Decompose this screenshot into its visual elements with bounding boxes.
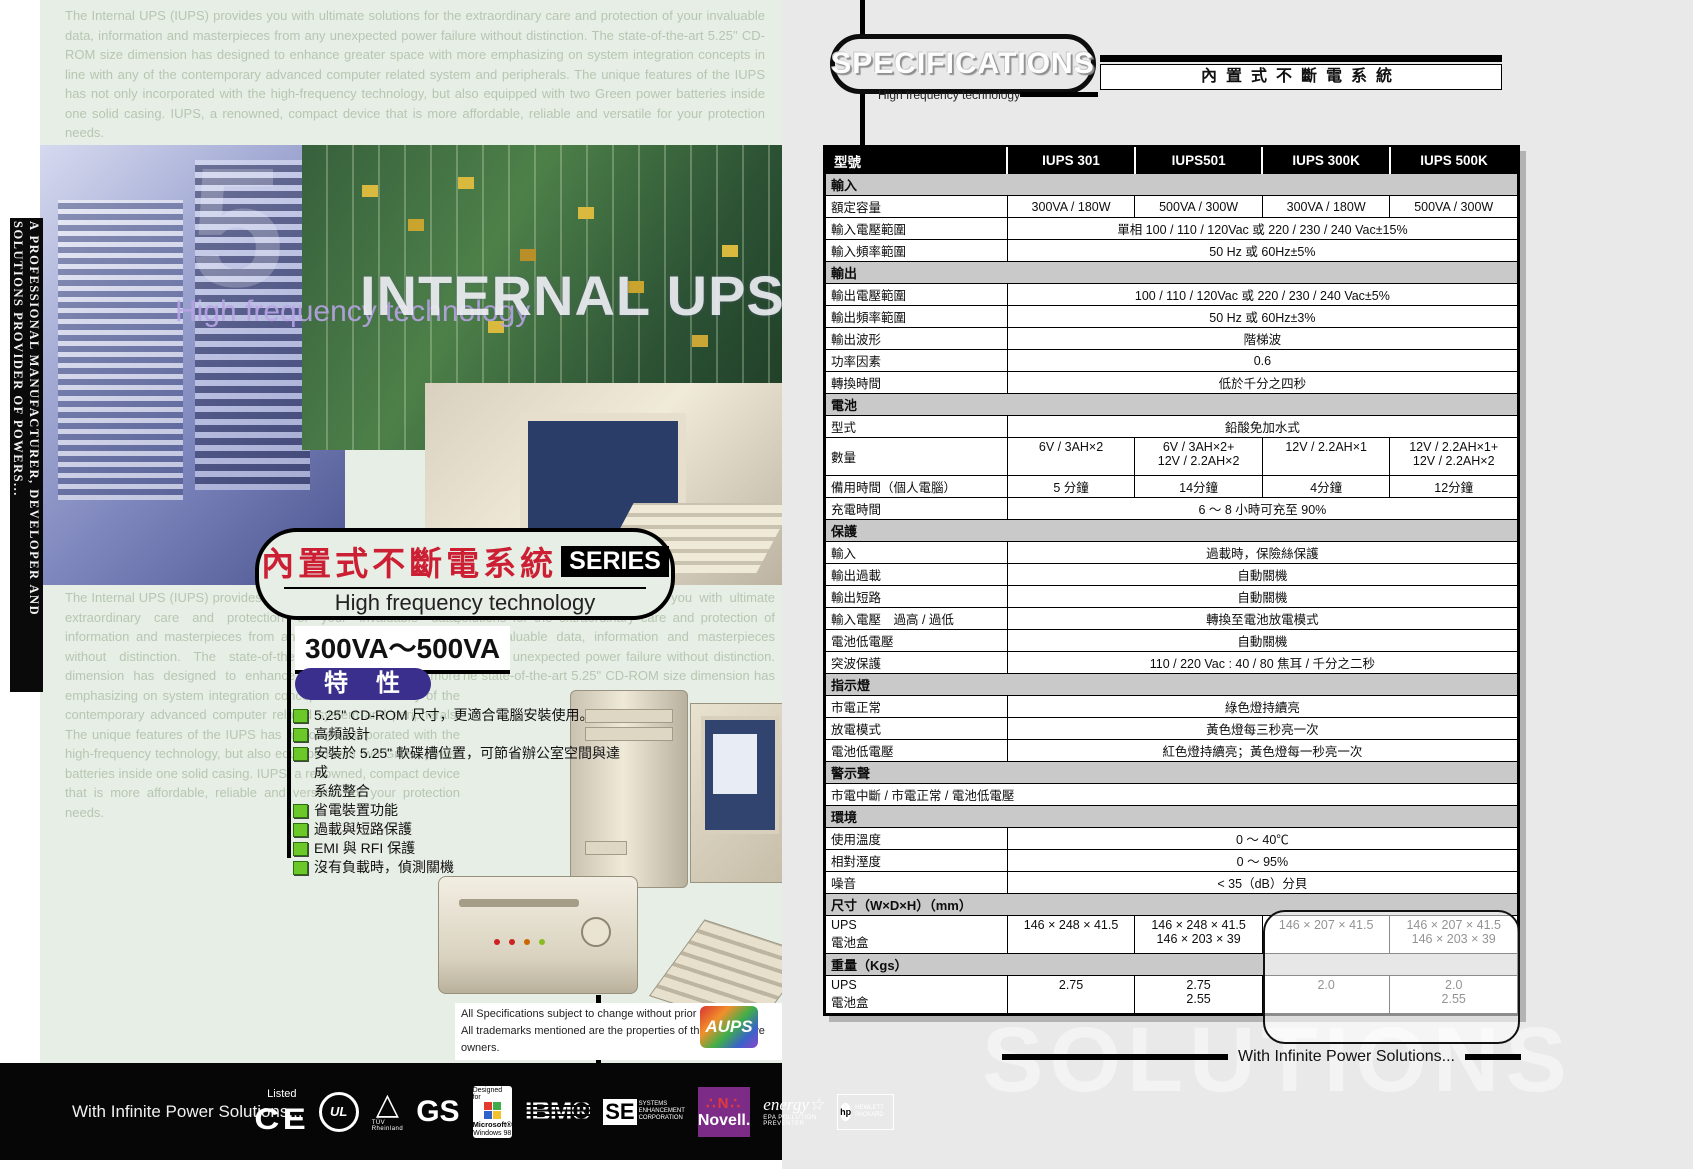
ce-mark-icon: CE bbox=[254, 1105, 309, 1135]
series-subtitle: High frequency technology bbox=[335, 590, 596, 616]
led-icon bbox=[539, 939, 545, 945]
brochure-spread: The Internal UPS (IUPS) provides you wit… bbox=[0, 0, 1693, 1169]
test-button bbox=[581, 917, 611, 947]
windows98-label: Windows 98 bbox=[473, 1130, 511, 1137]
spec-cell: 4分鐘 bbox=[1262, 476, 1390, 498]
spec-cell: UPS 電池盒 bbox=[826, 976, 1008, 1014]
se-mark-icon: SE bbox=[603, 1099, 636, 1125]
spec-row: 指示燈 bbox=[826, 674, 1518, 696]
spec-cell: 電池低電壓 bbox=[826, 740, 1008, 762]
spec-row: 輸入電壓範圍單相 100 / 110 / 120Vac 或 220 / 230 … bbox=[826, 218, 1518, 240]
spec-cell: 市電正常 bbox=[826, 696, 1008, 718]
spec-cell: 146 × 248 × 41.5 bbox=[1007, 916, 1135, 954]
bullet-square-icon bbox=[293, 842, 308, 856]
spec-cell: 50 Hz 或 60Hz±5% bbox=[1007, 240, 1517, 262]
spec-row: 使用溫度0 ～ 40℃ bbox=[826, 828, 1518, 850]
tuv-triangle-icon: △ bbox=[376, 1092, 399, 1118]
spec-cell: 突波保護 bbox=[826, 652, 1008, 674]
spec-cell: 300VA / 180W bbox=[1262, 196, 1390, 218]
ul-logo: UL bbox=[319, 1092, 359, 1132]
spec-cell: 紅色燈持續亮；黃色燈每一秒亮一次 bbox=[1007, 740, 1517, 762]
spec-cell: 自動關機 bbox=[1007, 630, 1517, 652]
crt-monitor-photo bbox=[690, 703, 782, 883]
spec-cell: IUPS 500K bbox=[1390, 148, 1518, 174]
spec-cell: 轉換時間 bbox=[826, 372, 1008, 394]
sidebar-vertical-slogan: A PROFESSIONAL MANUFACTURER, DEVELOPER A… bbox=[10, 218, 43, 692]
spec-cell: 轉換至電池放電模式 bbox=[1007, 608, 1517, 630]
feature-text: EMI 與 RFI 保護 bbox=[314, 839, 415, 858]
spec-row: 輸出電壓範圍100 / 110 / 120Vac 或 220 / 230 / 2… bbox=[826, 284, 1518, 306]
spec-cell: 50 Hz 或 60Hz±3% bbox=[1007, 306, 1517, 328]
hp-logo: hp HEWLETT PACKARD bbox=[837, 1094, 894, 1130]
spec-cell: 數量 bbox=[826, 438, 1008, 476]
spec-cell: 相對溼度 bbox=[826, 850, 1008, 872]
spec-row: 型號IUPS 301IUPS501IUPS 300KIUPS 500K bbox=[826, 148, 1518, 174]
subtitle-line bbox=[1020, 92, 1098, 97]
spec-cell: 5 分鐘 bbox=[1007, 476, 1135, 498]
spec-row: 相對溼度0 ～ 95% bbox=[826, 850, 1518, 872]
spec-cell: IUPS 301 bbox=[1007, 148, 1135, 174]
footer-rule bbox=[1002, 1054, 1228, 1060]
va-range-label: 300VA～500VA bbox=[295, 626, 510, 674]
feature-text: 過載與短路保護 bbox=[314, 820, 412, 839]
spec-cell: IUPS501 bbox=[1135, 148, 1263, 174]
spec-row: 警示聲 bbox=[826, 762, 1518, 784]
spec-row: 轉換時間低於千分之四秒 bbox=[826, 372, 1518, 394]
spec-cell: 0.6 bbox=[1007, 350, 1517, 372]
spec-row: 備用時間（個人電腦）5 分鐘14分鐘4分鐘12分鐘 bbox=[826, 476, 1518, 498]
feature-item: 過載與短路保護 bbox=[293, 820, 628, 839]
title-underline bbox=[284, 587, 647, 589]
spec-cell: 輸入電壓 過高 / 過低 bbox=[826, 608, 1008, 630]
spec-cell: 100 / 110 / 120Vac 或 220 / 230 / 240 Vac… bbox=[1007, 284, 1517, 306]
designed-for-label: Designed for bbox=[473, 1087, 512, 1101]
right-page: VERS SOLUTIONS SPECIFICATIONS High frequ… bbox=[782, 0, 1693, 1169]
spec-cell: 階梯波 bbox=[1007, 328, 1517, 350]
series-title-chinese: 內置式不斷電系統 bbox=[261, 537, 557, 585]
spec-cell: 12分鐘 bbox=[1390, 476, 1518, 498]
spec-row: 輸出過載自動關機 bbox=[826, 564, 1518, 586]
circuit-components bbox=[362, 185, 378, 197]
photo-collage: 5 High frequency technology INTERNAL UPS bbox=[40, 145, 782, 585]
spec-row: 噪音< 35（dB）分貝 bbox=[826, 872, 1518, 894]
spec-cell: 6 ～ 8 小時可充至 90% bbox=[1007, 498, 1517, 520]
spec-cell: 6V / 3AH×2+ 12V / 2.2AH×2 bbox=[1135, 438, 1263, 476]
spec-cell: 功率因素 bbox=[826, 350, 1008, 372]
footer-rule bbox=[1465, 1054, 1521, 1060]
bullet-square-icon bbox=[293, 823, 308, 837]
banner-title: 內置式不斷電系統 bbox=[1100, 64, 1502, 90]
spec-cell: 市電中斷 / 市電正常 / 電池低電壓 bbox=[826, 784, 1518, 806]
spec-cell: 型號 bbox=[826, 148, 1008, 174]
spec-cell: 輸入 bbox=[826, 174, 1518, 196]
feature-item: 5.25" CD-ROM 尺寸，更適合電腦安裝使用。 bbox=[293, 706, 628, 725]
building-tower bbox=[58, 200, 183, 500]
spec-cell: 0 ～ 95% bbox=[1007, 850, 1517, 872]
feature-text: 5.25" CD-ROM 尺寸，更適合電腦安裝使用。 bbox=[314, 706, 594, 725]
specifications-title: SPECIFICATIONS bbox=[831, 47, 1094, 81]
spec-row: 環境 bbox=[826, 806, 1518, 828]
spec-cell: 300VA / 180W bbox=[1007, 196, 1135, 218]
windows-flag-icon bbox=[484, 1102, 501, 1119]
bullet-square-icon bbox=[293, 728, 308, 742]
gs-logo: GS bbox=[416, 1097, 459, 1127]
spec-row: 電池 bbox=[826, 394, 1518, 416]
bullet-square-icon bbox=[293, 709, 308, 723]
spec-row: 放電模式黃色燈每三秒亮一次 bbox=[826, 718, 1518, 740]
spec-cell: 額定容量 bbox=[826, 196, 1008, 218]
spec-cell: 備用時間（個人電腦） bbox=[826, 476, 1008, 498]
overlay-internal-ups-text: INTERNAL UPS bbox=[360, 263, 782, 328]
spec-row: 輸出頻率範圍50 Hz 或 60Hz±3% bbox=[826, 306, 1518, 328]
spec-cell: 輸入電壓範圍 bbox=[826, 218, 1008, 240]
series-title-capsule: 內置式不斷電系統 SERIES High frequency technolog… bbox=[255, 528, 675, 620]
spec-cell: 輸出短路 bbox=[826, 586, 1008, 608]
novell-label: Novell. bbox=[698, 1112, 750, 1130]
spec-row: 電池低電壓自動關機 bbox=[826, 630, 1518, 652]
hp-mark-icon: hp bbox=[840, 1103, 851, 1121]
feature-text: 沒有負載時，偵測關機 bbox=[314, 858, 454, 877]
spec-cell: 12V / 2.2AH×1 bbox=[1262, 438, 1390, 476]
se-logo: SE SYSTEMS ENHANCEMENT CORPORATION bbox=[603, 1099, 685, 1125]
spec-cell: 使用溫度 bbox=[826, 828, 1008, 850]
tuv-label: TÜV Rheinland bbox=[372, 1120, 404, 1132]
spec-cell: 綠色燈持續亮 bbox=[1007, 696, 1517, 718]
spec-cell: < 35（dB）分貝 bbox=[1007, 872, 1517, 894]
spec-cell: 輸入 bbox=[826, 542, 1008, 564]
spec-cell: 輸入頻率範圍 bbox=[826, 240, 1008, 262]
monitor-screen bbox=[701, 716, 779, 834]
frame-line bbox=[287, 600, 291, 858]
footer-slogan: With Infinite Power Solutions... bbox=[1238, 1048, 1455, 1066]
feature-item: 省電裝置功能 bbox=[293, 801, 628, 820]
certification-logos: Listed CE UL △ TÜV Rheinland GS Designed… bbox=[258, 1063, 776, 1160]
spec-cell: 鉛酸免加水式 bbox=[1007, 416, 1517, 438]
spec-row: 輸入 bbox=[826, 174, 1518, 196]
feature-item: 高頻設計 bbox=[293, 725, 628, 744]
spec-row: 市電正常綠色燈持續亮 bbox=[826, 696, 1518, 718]
left-page: The Internal UPS (IUPS) provides you wit… bbox=[40, 0, 782, 1160]
footer-bar: With Infinite Power Solutions... Listed … bbox=[0, 1063, 782, 1160]
spec-cell: 自動關機 bbox=[1007, 586, 1517, 608]
feature-text: 省電裝置功能 bbox=[314, 801, 398, 820]
spec-cell: 輸出頻率範圍 bbox=[826, 306, 1008, 328]
spec-cell: 自動關機 bbox=[1007, 564, 1517, 586]
series-badge: SERIES bbox=[561, 546, 669, 577]
spec-cell: 噪音 bbox=[826, 872, 1008, 894]
bullet-square-icon bbox=[293, 861, 308, 875]
spec-row: 輸入電壓 過高 / 過低轉換至電池放電模式 bbox=[826, 608, 1518, 630]
spec-cell: 警示聲 bbox=[826, 762, 1518, 784]
feature-item: EMI 與 RFI 保護 bbox=[293, 839, 628, 858]
bullet-square-icon bbox=[293, 804, 308, 818]
internal-ups-device-photo bbox=[438, 876, 638, 994]
spec-row: 充電時間6 ～ 8 小時可充至 90% bbox=[826, 498, 1518, 520]
ul-mark-icon: UL bbox=[319, 1092, 359, 1132]
windows98-logo: Designed for Microsoft® Windows 98 bbox=[473, 1086, 512, 1138]
contact-box bbox=[1263, 910, 1520, 1044]
led-indicators bbox=[494, 939, 545, 945]
spec-row: 型式鉛酸免加水式 bbox=[826, 416, 1518, 438]
feature-item: 系統整合 bbox=[293, 782, 628, 801]
spec-cell: 146 × 248 × 41.5 146 × 203 × 39 bbox=[1135, 916, 1263, 954]
spec-cell: 型式 bbox=[826, 416, 1008, 438]
spec-cell: 電池低電壓 bbox=[826, 630, 1008, 652]
chinese-banner: 內置式不斷電系統 bbox=[1100, 55, 1502, 90]
energy-label: EPA POLLUTION PREVENTER bbox=[763, 1115, 824, 1127]
banner-top-bar bbox=[1100, 55, 1502, 62]
energy-star-logo: energy☆ EPA POLLUTION PREVENTER bbox=[763, 1096, 824, 1127]
spec-cell: 12V / 2.2AH×1+ 12V / 2.2AH×2 bbox=[1390, 438, 1518, 476]
sidebar-slogan-text: A PROFESSIONAL MANUFACTURER, DEVELOPER A… bbox=[10, 221, 42, 689]
spec-row: 輸入頻率範圍50 Hz 或 60Hz±5% bbox=[826, 240, 1518, 262]
energy-mark-icon: energy☆ bbox=[763, 1096, 824, 1113]
spec-cell: 500VA / 300W bbox=[1390, 196, 1518, 218]
spec-cell: 110 / 220 Vac : 40 / 80 焦耳 / 千分之二秒 bbox=[1007, 652, 1517, 674]
spec-cell: 0 ～ 40℃ bbox=[1007, 828, 1517, 850]
spec-cell: 過載時，保險絲保護 bbox=[1007, 542, 1517, 564]
spec-cell: 輸出過載 bbox=[826, 564, 1008, 586]
right-footer: With Infinite Power Solutions... bbox=[1002, 1048, 1521, 1066]
spec-cell: 單相 100 / 110 / 120Vac 或 220 / 230 / 240 … bbox=[1007, 218, 1517, 240]
spec-table-body: 型號IUPS 301IUPS501IUPS 300KIUPS 500K輸入額定容… bbox=[826, 148, 1518, 1014]
spec-cell: 2.75 bbox=[1007, 976, 1135, 1014]
spec-cell: 6V / 3AH×2 bbox=[1007, 438, 1135, 476]
vent-slot bbox=[459, 899, 579, 907]
spec-row: 電池低電壓紅色燈持續亮；黃色燈每一秒亮一次 bbox=[826, 740, 1518, 762]
feature-text: 高頻設計 bbox=[314, 725, 370, 744]
feature-item: 安裝於 5.25" 軟碟槽位置，可節省辦公室空間與達成 bbox=[293, 744, 628, 782]
feature-text: 系統整合 bbox=[314, 782, 370, 801]
listed-label: Listed bbox=[267, 1089, 296, 1100]
gs-mark-icon: GS bbox=[416, 1097, 459, 1127]
led-icon bbox=[524, 939, 530, 945]
features-heading: 特 性 bbox=[295, 668, 431, 700]
spec-cell: 黃色燈每三秒亮一次 bbox=[1007, 718, 1517, 740]
bullet-square-icon bbox=[293, 747, 308, 761]
tuv-logo: △ TÜV Rheinland bbox=[372, 1092, 404, 1132]
spec-cell: UPS 電池盒 bbox=[826, 916, 1008, 954]
spec-cell: 2.75 2.55 bbox=[1135, 976, 1263, 1014]
feature-text: 安裝於 5.25" 軟碟槽位置，可節省辦公室空間與達成 bbox=[314, 744, 628, 782]
spec-cell: 輸出 bbox=[826, 262, 1518, 284]
spec-row: 數量6V / 3AH×26V / 3AH×2+ 12V / 2.2AH×212V… bbox=[826, 438, 1518, 476]
spec-row: 輸入過載時，保險絲保護 bbox=[826, 542, 1518, 564]
spec-cell: 保護 bbox=[826, 520, 1518, 542]
background-marketing-text: The Internal UPS (IUPS) provides you wit… bbox=[65, 6, 765, 144]
spec-row: 輸出短路自動關機 bbox=[826, 586, 1518, 608]
spec-cell: 輸出電壓範圍 bbox=[826, 284, 1008, 306]
spec-cell: IUPS 300K bbox=[1262, 148, 1390, 174]
hp-label: HEWLETT PACKARD bbox=[855, 1105, 891, 1119]
spec-cell: 500VA / 300W bbox=[1135, 196, 1263, 218]
screen-window bbox=[713, 734, 757, 794]
spec-cell: 低於千分之四秒 bbox=[1007, 372, 1517, 394]
aups-logo: AUPS bbox=[700, 1006, 758, 1048]
ibm-logo: IBM® bbox=[525, 1098, 590, 1125]
spec-row: 功率因素0.6 bbox=[826, 350, 1518, 372]
spec-cell: 放電模式 bbox=[826, 718, 1008, 740]
spec-row: 輸出 bbox=[826, 262, 1518, 284]
spec-row: 輸出波形階梯波 bbox=[826, 328, 1518, 350]
spec-row: 市電中斷 / 市電正常 / 電池低電壓 bbox=[826, 784, 1518, 806]
features-list: 5.25" CD-ROM 尺寸，更適合電腦安裝使用。高頻設計安裝於 5.25" … bbox=[293, 706, 628, 877]
spec-table: 型號IUPS 301IUPS501IUPS 300KIUPS 500K輸入額定容… bbox=[823, 145, 1520, 1016]
spec-cell: 充電時間 bbox=[826, 498, 1008, 520]
ibm-mark-icon: IBM® bbox=[525, 1098, 590, 1125]
specifications-subtitle: High frequency technology bbox=[878, 88, 1020, 102]
spec-row: 額定容量300VA / 180W500VA / 300W300VA / 180W… bbox=[826, 196, 1518, 218]
led-icon bbox=[509, 939, 515, 945]
spec-table-grid: 型號IUPS 301IUPS501IUPS 300KIUPS 500K輸入額定容… bbox=[825, 147, 1518, 1014]
spec-cell: 電池 bbox=[826, 394, 1518, 416]
microsoft-label: Microsoft® bbox=[473, 1120, 512, 1129]
se-label: SYSTEMS ENHANCEMENT CORPORATION bbox=[639, 1101, 685, 1122]
spec-row: 保護 bbox=[826, 520, 1518, 542]
specifications-header-capsule: SPECIFICATIONS bbox=[830, 34, 1096, 94]
feature-item: 沒有負載時，偵測關機 bbox=[293, 858, 628, 877]
led-icon bbox=[494, 939, 500, 945]
spec-cell: 環境 bbox=[826, 806, 1518, 828]
spec-cell: 輸出波形 bbox=[826, 328, 1008, 350]
spec-cell: 指示燈 bbox=[826, 674, 1518, 696]
spec-row: 突波保護110 / 220 Vac : 40 / 80 焦耳 / 千分之二秒 bbox=[826, 652, 1518, 674]
ce-listed-logo: Listed CE bbox=[258, 1089, 306, 1135]
novell-n-icon: ∴N∴ bbox=[706, 1094, 742, 1112]
spec-cell: 14分鐘 bbox=[1135, 476, 1263, 498]
novell-logo: ∴N∴ Novell. bbox=[698, 1087, 750, 1137]
